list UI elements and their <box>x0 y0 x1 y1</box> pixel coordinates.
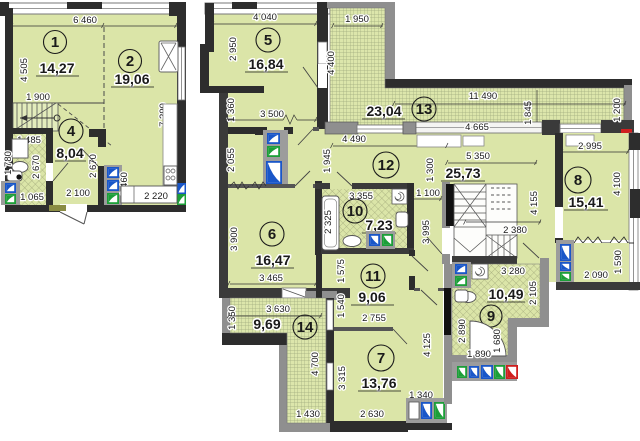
svg-text:2 055: 2 055 <box>226 148 237 172</box>
svg-text:25,73: 25,73 <box>445 165 480 181</box>
svg-text:2 890: 2 890 <box>457 319 468 343</box>
svg-text:16,47: 16,47 <box>255 252 290 268</box>
svg-text:13,76: 13,76 <box>361 375 396 391</box>
svg-text:4 490: 4 490 <box>342 134 366 145</box>
svg-text:2 630: 2 630 <box>360 409 384 420</box>
svg-text:2 220: 2 220 <box>144 191 168 202</box>
svg-text:1 950: 1 950 <box>345 14 369 25</box>
svg-text:1 200: 1 200 <box>612 98 623 122</box>
svg-text:9,06: 9,06 <box>358 289 385 305</box>
svg-text:1 890: 1 890 <box>467 349 491 360</box>
svg-text:1 780: 1 780 <box>3 151 14 175</box>
svg-text:9,69: 9,69 <box>253 316 280 332</box>
svg-text:1 680: 1 680 <box>492 329 503 353</box>
svg-text:4 155: 4 155 <box>529 191 540 215</box>
svg-text:10,49: 10,49 <box>488 286 523 302</box>
svg-text:2 755: 2 755 <box>362 313 386 324</box>
svg-text:4 665: 4 665 <box>465 122 489 133</box>
svg-text:13: 13 <box>416 101 433 118</box>
svg-text:6 460: 6 460 <box>73 15 97 26</box>
svg-text:9: 9 <box>487 308 495 325</box>
svg-text:4 400: 4 400 <box>326 51 337 75</box>
svg-text:4 125: 4 125 <box>422 333 433 357</box>
svg-text:1 065: 1 065 <box>20 192 44 203</box>
svg-text:14: 14 <box>297 319 314 336</box>
svg-text:6: 6 <box>268 226 276 243</box>
svg-text:1 590: 1 590 <box>613 250 624 274</box>
svg-text:1 430: 1 430 <box>296 409 320 420</box>
svg-text:23,04: 23,04 <box>366 103 401 119</box>
svg-text:2 380: 2 380 <box>503 225 527 236</box>
svg-text:3 500: 3 500 <box>260 109 284 120</box>
svg-text:1 100: 1 100 <box>416 188 440 199</box>
svg-text:2 325: 2 325 <box>323 210 334 234</box>
svg-text:11: 11 <box>365 268 381 285</box>
svg-text:8,04: 8,04 <box>56 145 83 161</box>
svg-text:11 490: 11 490 <box>469 91 497 102</box>
svg-text:7,23: 7,23 <box>365 217 392 233</box>
svg-text:2 105: 2 105 <box>528 281 539 305</box>
svg-text:15,41: 15,41 <box>568 194 603 210</box>
svg-text:8: 8 <box>574 172 582 189</box>
svg-text:5: 5 <box>264 32 272 49</box>
svg-text:2 950: 2 950 <box>228 37 239 61</box>
svg-text:1: 1 <box>51 34 59 51</box>
svg-text:16,84: 16,84 <box>248 56 283 72</box>
svg-text:14,27: 14,27 <box>39 60 74 76</box>
svg-text:1 575: 1 575 <box>336 259 347 283</box>
svg-text:2 995: 2 995 <box>578 141 602 152</box>
svg-text:1 845: 1 845 <box>523 101 534 125</box>
svg-text:4 700: 4 700 <box>310 352 321 376</box>
svg-text:3 630: 3 630 <box>266 304 290 315</box>
svg-text:7: 7 <box>377 350 385 367</box>
svg-text:1 540: 1 540 <box>336 294 347 318</box>
svg-text:4 100: 4 100 <box>612 172 623 196</box>
svg-text:5 350: 5 350 <box>466 151 490 162</box>
svg-text:10: 10 <box>347 203 364 220</box>
svg-text:3 280: 3 280 <box>501 266 525 277</box>
svg-text:12: 12 <box>378 157 395 174</box>
svg-text:4 505: 4 505 <box>19 58 30 82</box>
svg-text:3 315: 3 315 <box>337 366 348 390</box>
svg-text:2: 2 <box>126 53 134 70</box>
svg-text:19,06: 19,06 <box>114 71 149 87</box>
svg-text:2 670: 2 670 <box>31 155 42 179</box>
svg-text:2 100: 2 100 <box>66 188 90 199</box>
svg-text:1 900: 1 900 <box>26 92 50 103</box>
svg-text:2 090: 2 090 <box>584 270 608 281</box>
svg-text:1 300: 1 300 <box>425 158 436 182</box>
svg-text:4: 4 <box>67 123 76 140</box>
svg-text:1 945: 1 945 <box>322 149 333 173</box>
svg-text:4 040: 4 040 <box>253 12 277 23</box>
svg-text:1 350: 1 350 <box>227 306 238 330</box>
svg-text:3 465: 3 465 <box>259 273 283 284</box>
svg-text:3 900: 3 900 <box>229 227 240 251</box>
